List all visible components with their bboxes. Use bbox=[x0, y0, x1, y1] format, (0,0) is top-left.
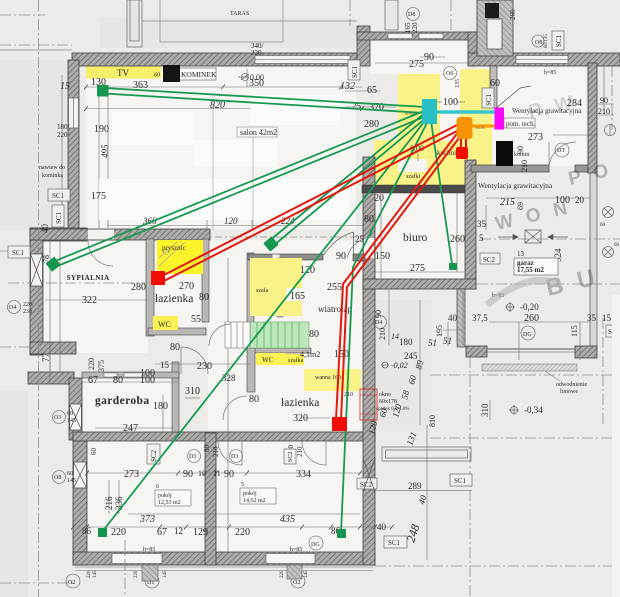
svg-text:322: 322 bbox=[82, 295, 97, 306]
svg-text:11: 11 bbox=[213, 469, 221, 478]
svg-text:373: 373 bbox=[139, 514, 155, 525]
svg-text:210: 210 bbox=[378, 328, 387, 340]
svg-text:-0,34: -0,34 bbox=[524, 405, 543, 415]
svg-text:h=85: h=85 bbox=[143, 547, 155, 553]
svg-text:37,5: 37,5 bbox=[472, 313, 488, 323]
svg-text:25: 25 bbox=[355, 234, 365, 244]
svg-text:80: 80 bbox=[309, 329, 319, 340]
svg-text:165: 165 bbox=[290, 291, 305, 302]
svg-text:O6: O6 bbox=[446, 71, 453, 77]
svg-text:15: 15 bbox=[160, 360, 170, 370]
svg-text:334: 334 bbox=[296, 469, 311, 480]
svg-text:100: 100 bbox=[140, 375, 155, 386]
svg-text:spadek 0.5-1.0%: spadek 0.5-1.0% bbox=[376, 407, 409, 412]
svg-text:275: 275 bbox=[409, 59, 424, 70]
svg-text:145: 145 bbox=[93, 570, 98, 578]
svg-text:435: 435 bbox=[280, 514, 295, 525]
svg-text:DT: DT bbox=[557, 148, 565, 154]
svg-text:SC1: SC1 bbox=[52, 192, 65, 200]
svg-text:szafa: szafa bbox=[256, 287, 269, 294]
svg-text:WC: WC bbox=[262, 356, 274, 364]
svg-text:5: 5 bbox=[241, 482, 244, 488]
svg-text:SC1: SC1 bbox=[454, 477, 467, 485]
svg-text:40: 40 bbox=[448, 313, 458, 323]
svg-text:odwodnienie: odwodnienie bbox=[556, 382, 587, 388]
svg-text:55: 55 bbox=[191, 314, 201, 325]
svg-text:210: 210 bbox=[520, 160, 529, 172]
svg-text:łazienka: łazienka bbox=[155, 293, 193, 305]
svg-text:220/: 220/ bbox=[23, 302, 34, 308]
svg-text:255: 255 bbox=[327, 282, 342, 293]
svg-text:310: 310 bbox=[480, 403, 490, 417]
svg-text:220: 220 bbox=[280, 570, 285, 578]
svg-text:SC1: SC1 bbox=[55, 211, 63, 224]
svg-text:80: 80 bbox=[249, 394, 259, 405]
svg-text:SC2: SC2 bbox=[150, 449, 158, 462]
svg-text:garderoba: garderoba bbox=[95, 395, 150, 407]
svg-text:310: 310 bbox=[185, 386, 200, 397]
svg-text:SC1: SC1 bbox=[12, 249, 25, 257]
svg-text:pokój: pokój bbox=[243, 491, 257, 497]
svg-text:szafki: szafki bbox=[406, 173, 421, 180]
svg-text:90: 90 bbox=[224, 469, 234, 480]
svg-text:D8: D8 bbox=[408, 12, 415, 18]
svg-text:D3: D3 bbox=[189, 454, 196, 460]
svg-text:820: 820 bbox=[210, 100, 225, 111]
svg-text:320: 320 bbox=[293, 413, 308, 424]
svg-text:WC: WC bbox=[158, 320, 171, 329]
svg-text:-0,20: -0,20 bbox=[520, 302, 539, 312]
svg-text:289: 289 bbox=[408, 481, 422, 491]
svg-text:90: 90 bbox=[374, 310, 383, 318]
svg-text:260: 260 bbox=[524, 313, 539, 324]
svg-text:135: 135 bbox=[455, 79, 461, 88]
svg-text:210: 210 bbox=[598, 107, 610, 116]
svg-text:12: 12 bbox=[174, 526, 183, 536]
svg-text:220: 220 bbox=[87, 570, 92, 578]
svg-text:210: 210 bbox=[212, 446, 220, 457]
svg-text:13: 13 bbox=[517, 250, 525, 258]
svg-text:SC2: SC2 bbox=[288, 452, 294, 462]
svg-text:90: 90 bbox=[336, 251, 346, 262]
svg-text:195: 195 bbox=[435, 325, 444, 337]
svg-text:220: 220 bbox=[411, 22, 419, 33]
svg-text:0.00: 0.00 bbox=[250, 73, 264, 82]
svg-text:15: 15 bbox=[60, 81, 70, 92]
svg-text:D3: D3 bbox=[231, 454, 238, 460]
svg-text:132: 132 bbox=[340, 81, 355, 92]
svg-text:51: 51 bbox=[428, 338, 437, 348]
svg-text:65: 65 bbox=[367, 85, 377, 96]
svg-text:180: 180 bbox=[399, 337, 413, 347]
svg-text:SYPIALNIA: SYPIALNIA bbox=[67, 274, 111, 282]
svg-text:60: 60 bbox=[490, 78, 500, 89]
svg-text:220: 220 bbox=[251, 49, 262, 57]
svg-text:230: 230 bbox=[197, 361, 212, 372]
svg-text:275: 275 bbox=[410, 263, 425, 274]
svg-text:375: 375 bbox=[97, 360, 106, 372]
svg-text:90: 90 bbox=[424, 52, 434, 63]
svg-text:okno: okno bbox=[379, 392, 391, 398]
svg-text:prysznic: prysznic bbox=[162, 244, 186, 252]
svg-text:O8: O8 bbox=[54, 475, 61, 481]
svg-text:270: 270 bbox=[179, 281, 194, 292]
svg-text:17,55 m2: 17,55 m2 bbox=[517, 266, 544, 274]
svg-text:h=85: h=85 bbox=[290, 547, 302, 553]
svg-text:247: 247 bbox=[123, 423, 138, 434]
svg-text:220: 220 bbox=[235, 527, 250, 538]
svg-text:60: 60 bbox=[90, 448, 98, 456]
svg-text:60/135: 60/135 bbox=[544, 34, 549, 48]
svg-text:220: 220 bbox=[87, 358, 96, 370]
svg-text:145: 145 bbox=[163, 570, 168, 578]
svg-text:h=85: h=85 bbox=[544, 70, 556, 76]
svg-text:80: 80 bbox=[113, 375, 123, 386]
svg-text:115: 115 bbox=[570, 325, 579, 337]
svg-text:szafka: szafka bbox=[288, 357, 304, 364]
svg-text:60: 60 bbox=[154, 73, 160, 79]
svg-text:190: 190 bbox=[94, 124, 109, 135]
svg-text:145: 145 bbox=[304, 570, 309, 578]
svg-text:O3: O3 bbox=[54, 415, 61, 421]
svg-text:5: 5 bbox=[479, 233, 484, 243]
svg-text:90: 90 bbox=[600, 96, 608, 105]
svg-text:14,62 m2: 14,62 m2 bbox=[243, 498, 266, 504]
svg-text:145: 145 bbox=[67, 478, 76, 484]
svg-text:DG: DG bbox=[311, 542, 320, 548]
svg-text:60: 60 bbox=[600, 223, 606, 228]
svg-text:wiatrołap: wiatrołap bbox=[318, 304, 352, 314]
svg-text:215: 215 bbox=[500, 197, 515, 208]
svg-text:180/: 180/ bbox=[57, 123, 70, 131]
svg-text:SC2: SC2 bbox=[483, 256, 496, 264]
svg-text:14: 14 bbox=[391, 332, 399, 341]
svg-text:salon 42m2: salon 42m2 bbox=[240, 128, 277, 137]
svg-text:35: 35 bbox=[477, 219, 487, 229]
svg-text:145: 145 bbox=[67, 418, 76, 424]
svg-text:273: 273 bbox=[528, 132, 543, 143]
svg-text:40: 40 bbox=[377, 522, 387, 532]
svg-text:TV: TV bbox=[117, 68, 129, 78]
svg-text:260: 260 bbox=[509, 9, 517, 20]
svg-text:280: 280 bbox=[131, 282, 146, 293]
svg-text:O2: O2 bbox=[293, 580, 300, 586]
svg-text:łazienka: łazienka bbox=[281, 397, 319, 409]
svg-text:O8: O8 bbox=[535, 40, 542, 46]
svg-text:liniowe: liniowe bbox=[560, 389, 578, 395]
svg-text:210: 210 bbox=[296, 446, 304, 457]
svg-text:60: 60 bbox=[614, 243, 620, 248]
svg-text:kominka: kominka bbox=[42, 173, 63, 179]
svg-text:nawiew do: nawiew do bbox=[39, 165, 65, 171]
svg-text:O2: O2 bbox=[68, 580, 75, 586]
svg-text:35: 35 bbox=[587, 313, 597, 323]
svg-text:90: 90 bbox=[183, 469, 193, 480]
svg-text:20: 20 bbox=[374, 193, 384, 204]
svg-text:150: 150 bbox=[375, 251, 390, 262]
svg-text:SC1: SC1 bbox=[351, 65, 359, 78]
svg-text:Wentylacja grawitacyjna: Wentylacja grawitacyjna bbox=[512, 107, 582, 115]
svg-text:15: 15 bbox=[602, 313, 612, 323]
svg-text:80: 80 bbox=[364, 214, 374, 225]
svg-text:230: 230 bbox=[23, 309, 32, 315]
svg-text:D4: D4 bbox=[375, 320, 382, 326]
svg-text:-0,02: -0,02 bbox=[391, 361, 408, 370]
svg-text:51: 51 bbox=[443, 336, 452, 346]
svg-text:KOMINEK: KOMINEK bbox=[181, 70, 217, 79]
svg-text:pom. tech.: pom. tech. bbox=[506, 120, 536, 128]
svg-text:273: 273 bbox=[124, 469, 139, 480]
svg-text:komin: komin bbox=[514, 152, 529, 158]
svg-text:pokój: pokój bbox=[158, 493, 172, 499]
svg-text:77: 77 bbox=[41, 353, 51, 363]
svg-text:216: 216 bbox=[104, 496, 114, 510]
svg-text:6: 6 bbox=[156, 484, 159, 490]
svg-text:129: 129 bbox=[193, 527, 208, 538]
svg-text:260: 260 bbox=[450, 234, 465, 245]
svg-text:336: 336 bbox=[114, 496, 124, 510]
svg-text:O4: O4 bbox=[9, 305, 16, 311]
svg-text:SC1: SC1 bbox=[388, 539, 401, 547]
svg-text:220: 220 bbox=[111, 527, 126, 538]
svg-text:150: 150 bbox=[334, 349, 349, 360]
svg-text:60: 60 bbox=[67, 411, 73, 417]
svg-text:40: 40 bbox=[40, 224, 50, 234]
svg-text:280: 280 bbox=[364, 119, 379, 130]
svg-text:Wentylacja grawitacyjna: Wentylacja grawitacyjna bbox=[478, 181, 553, 190]
svg-text:SC1: SC1 bbox=[555, 34, 563, 47]
svg-text:20: 20 bbox=[575, 195, 585, 205]
svg-text:220: 220 bbox=[57, 131, 68, 139]
svg-text:80: 80 bbox=[203, 445, 211, 453]
svg-text:810: 810 bbox=[428, 415, 437, 427]
svg-text:60x178: 60x178 bbox=[379, 399, 397, 405]
svg-text:100: 100 bbox=[443, 97, 458, 108]
svg-text:67: 67 bbox=[88, 375, 98, 386]
svg-text:60: 60 bbox=[67, 471, 73, 477]
svg-text:220: 220 bbox=[134, 570, 139, 578]
svg-text:TARAS: TARAS bbox=[230, 11, 249, 17]
svg-text:SC1: SC1 bbox=[485, 93, 493, 106]
svg-text:DG: DG bbox=[523, 332, 532, 338]
svg-text:495: 495 bbox=[100, 144, 110, 158]
svg-text:175: 175 bbox=[91, 191, 106, 202]
svg-text:180: 180 bbox=[153, 401, 168, 412]
svg-text:80: 80 bbox=[199, 292, 209, 303]
svg-text:12,53 m2: 12,53 m2 bbox=[158, 500, 181, 506]
svg-text:biuro: biuro bbox=[403, 232, 428, 244]
svg-text:210: 210 bbox=[344, 392, 353, 398]
svg-text:120: 120 bbox=[224, 216, 238, 226]
svg-text:80: 80 bbox=[170, 342, 180, 353]
